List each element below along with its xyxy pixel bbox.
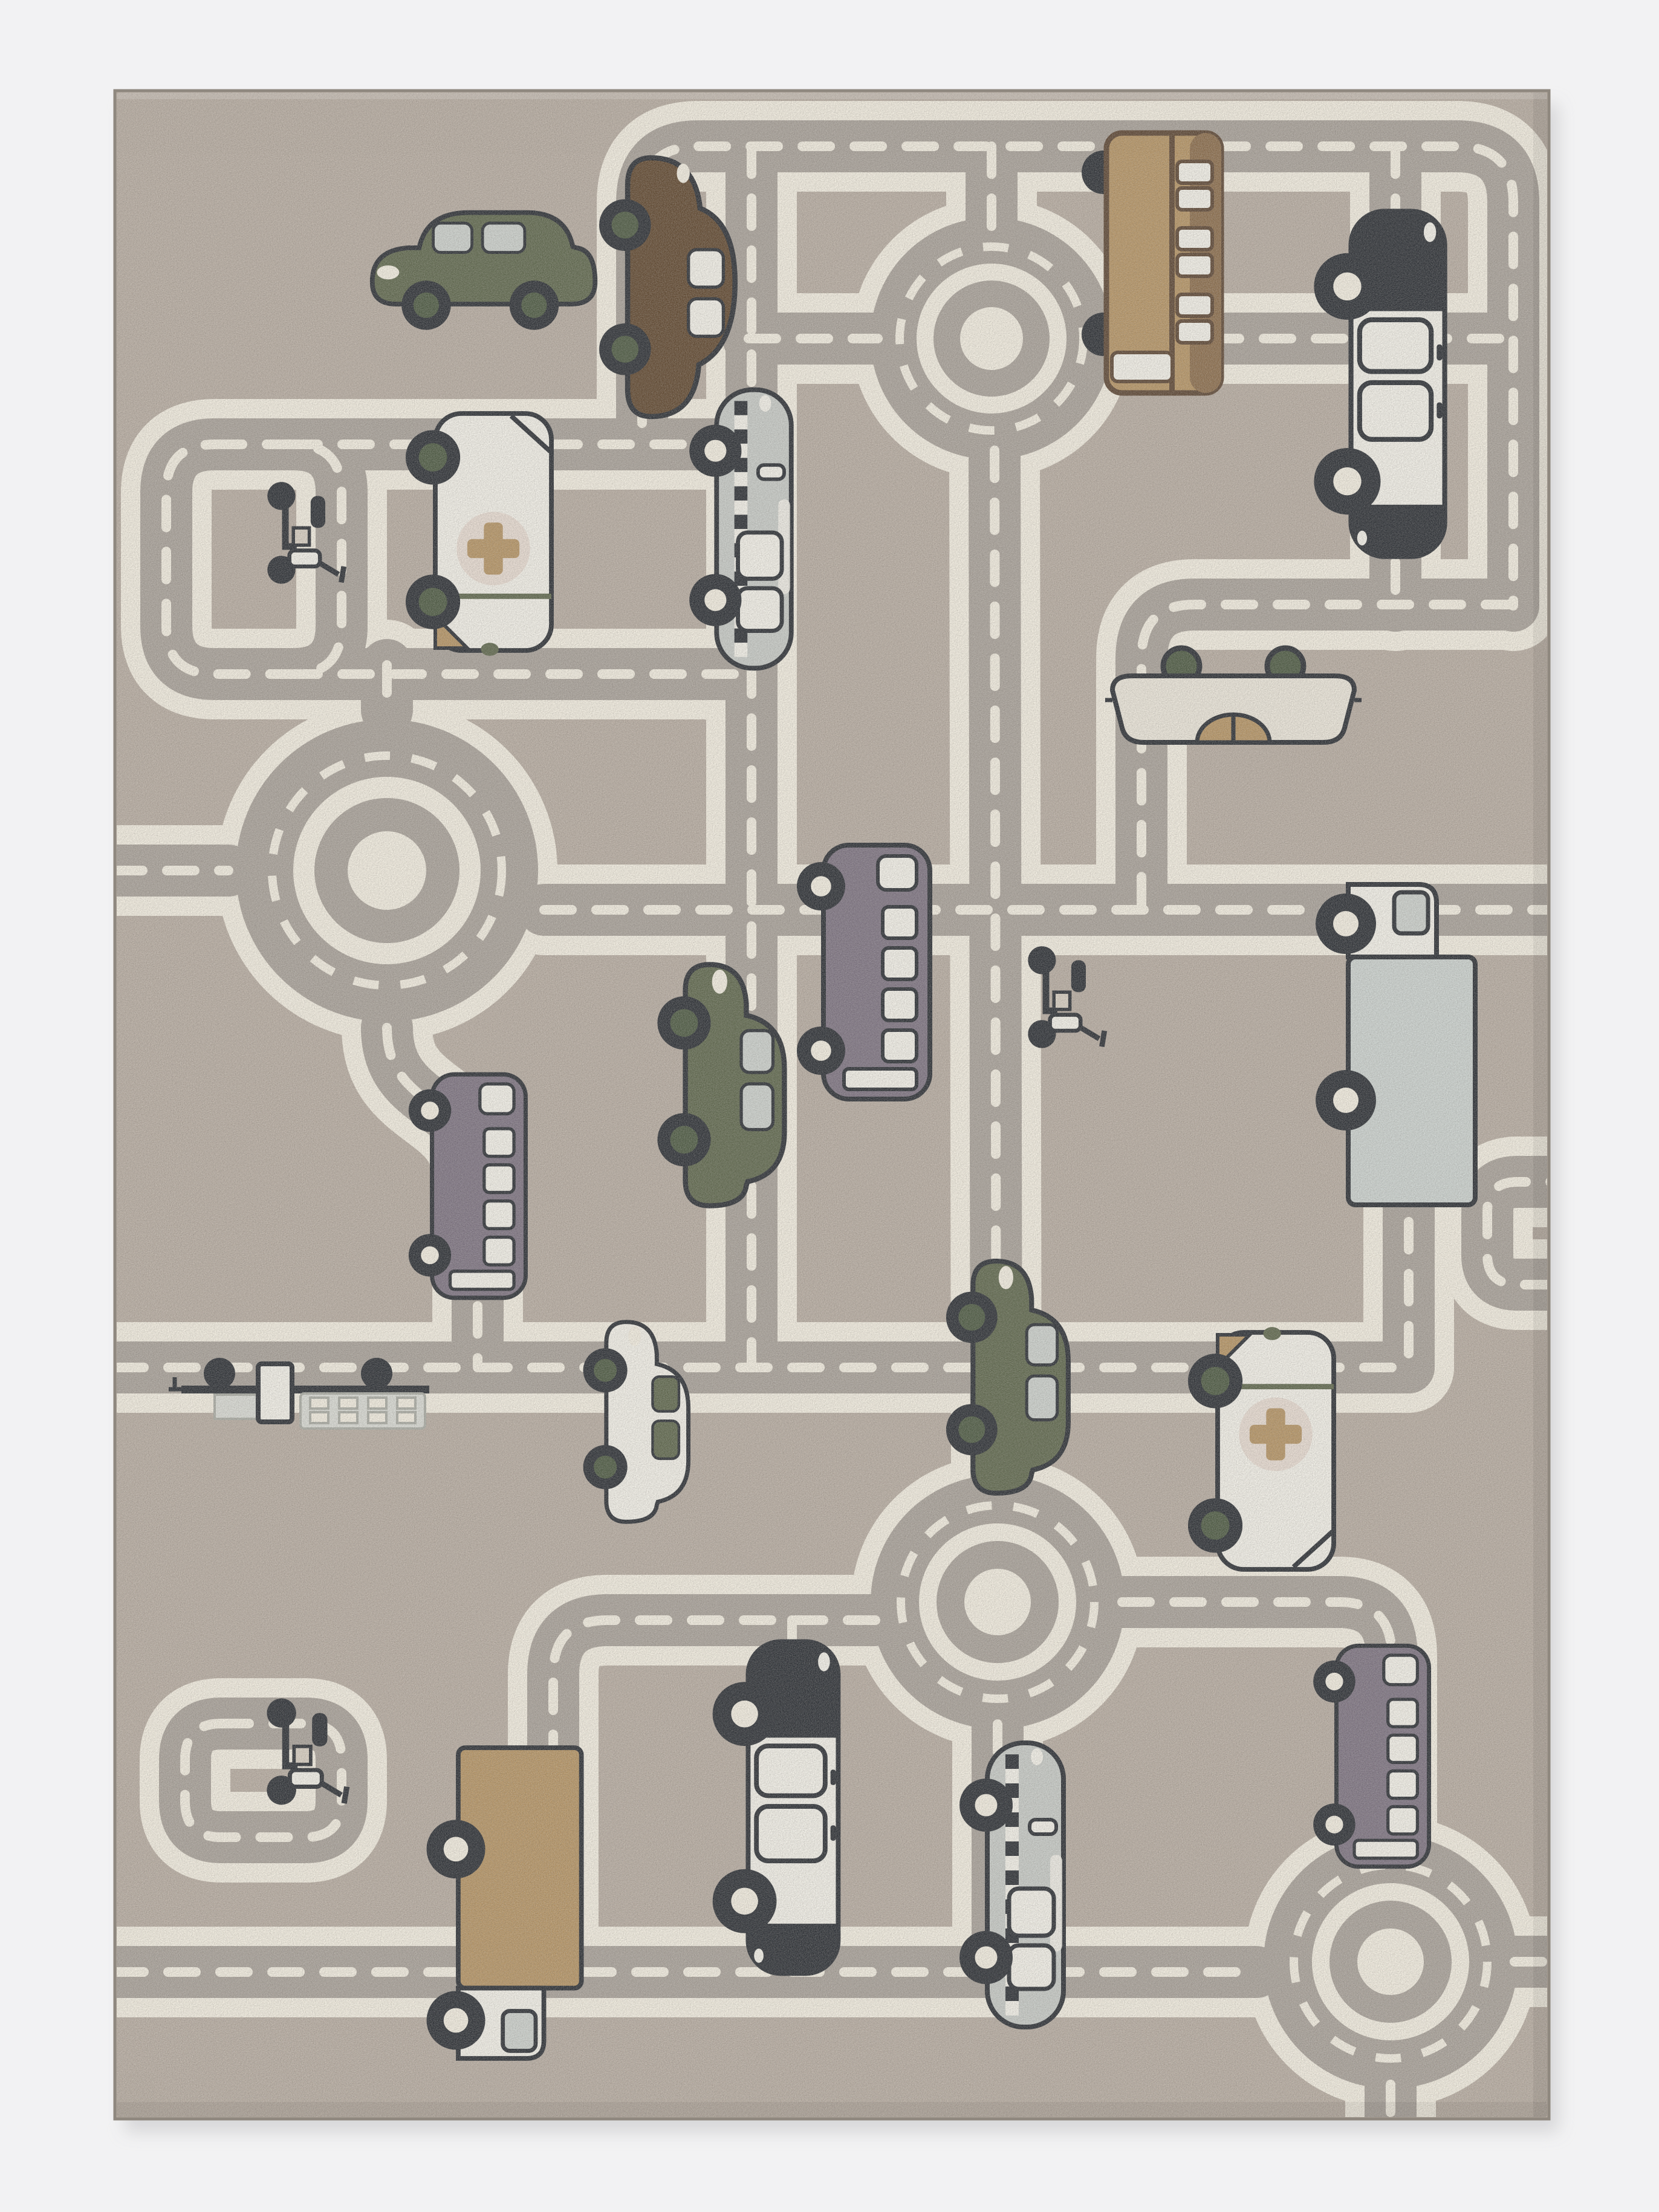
rug-canvas (0, 0, 1659, 2212)
rug-photo (0, 0, 1659, 2212)
screenshot: Children's play rug with cream roads, ro… (0, 0, 1659, 2212)
rug-right-fold (1533, 91, 1549, 2119)
rug-bottom-fold (115, 2102, 1549, 2119)
play-rug-product-photo: Children's play rug with cream roads, ro… (0, 0, 1659, 2212)
fabric-grain-light (115, 91, 1549, 2119)
rug-print (115, 91, 1578, 2119)
